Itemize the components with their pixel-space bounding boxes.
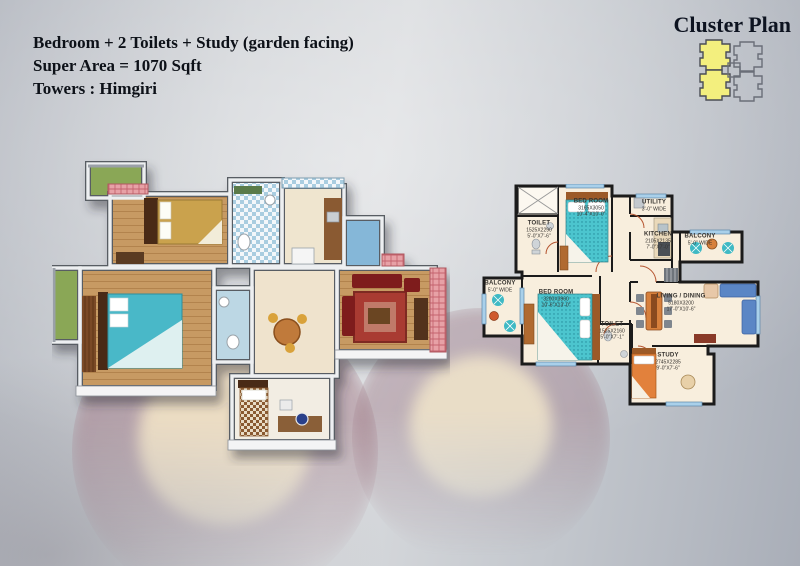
cluster-tower-highlight-top <box>700 40 730 70</box>
towers-line: Towers : Himgiri <box>33 77 354 100</box>
room-label-utility: UTILITY 3'-0" WIDE <box>642 199 666 212</box>
cluster-towers-icon <box>688 36 776 104</box>
plan3d-living-furniture <box>342 274 428 342</box>
floor-plan-3d-render <box>52 156 450 466</box>
unit-description: Bedroom + 2 Toilets + Study (garden faci… <box>33 31 354 100</box>
floor-plan-2d <box>480 184 762 420</box>
cluster-plan-title: Cluster Plan <box>673 12 791 38</box>
room-label-balcony-left: BALCONY 5'-0" WIDE <box>484 280 515 293</box>
room-label-balcony-right: BALCONY 5'-0" WIDE <box>684 233 715 246</box>
cluster-tower-highlight-bottom <box>700 70 730 100</box>
room-label-bedroom-2: BED ROOM 3200X3960 10'-6"X13'-0" <box>539 289 574 308</box>
room-label-toilet-2: TOILET 1525X2160 5'-0"X7'-1" <box>599 321 625 340</box>
room-label-toilet-1: TOILET 1525X2290 5'-0"X7'-6" <box>526 220 552 239</box>
plan2d-shaft <box>518 187 558 214</box>
room-label-study: STUDY 2745X2285 9'-0"X7'-6" <box>655 352 681 371</box>
brochure-page: BED ROOM 3165X3050 10'-4"X10'-0" TOILET … <box>0 0 800 566</box>
super-area-line: Super Area = 1070 Sqft <box>33 54 354 77</box>
cluster-tower-outline-top <box>734 42 762 71</box>
room-label-living-dining: LIVING / DINING 5180X3200 17'-0"X10'-6" <box>656 293 705 312</box>
room-label-bedroom-1: BED ROOM 3165X3050 10'-4"X10'-0" <box>574 198 609 217</box>
unit-type-line: Bedroom + 2 Toilets + Study (garden faci… <box>33 31 354 54</box>
room-label-kitchen: KITCHEN 2105X2135 7'-0"X7'-0" <box>644 231 672 250</box>
